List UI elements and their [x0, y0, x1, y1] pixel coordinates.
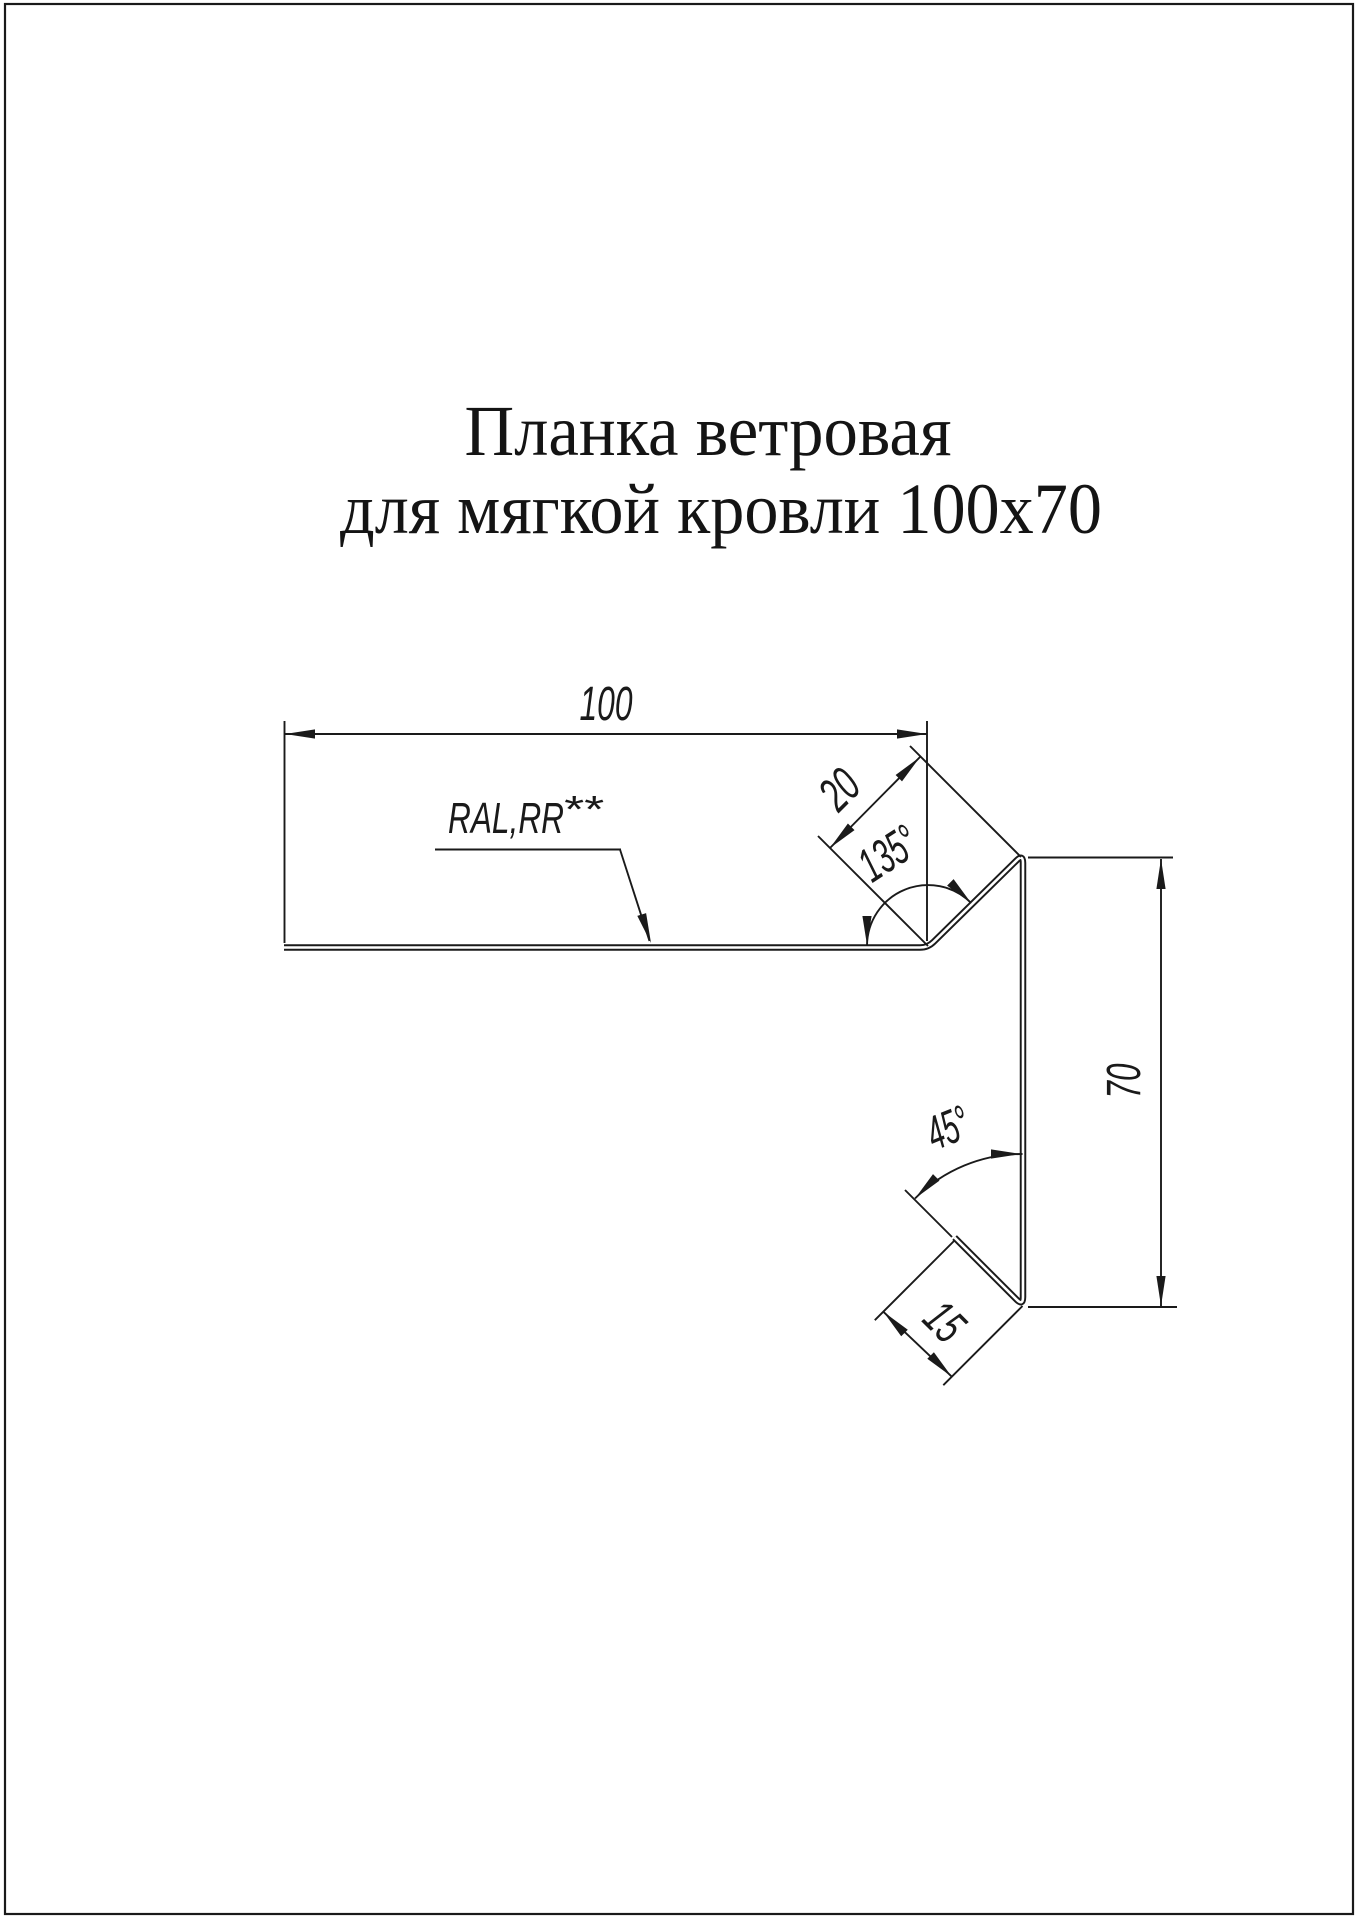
leader-arrowhead: [637, 913, 651, 943]
arrowhead-on-web: [862, 916, 871, 945]
arrowhead-lower: [830, 824, 855, 849]
drawing-sheet: Планка ветровая для мягкой кровли 100х70…: [0, 0, 1359, 1920]
dim-top-width-value: 100: [580, 678, 633, 731]
arrowhead-right: [897, 729, 927, 738]
arrowhead-lower: [927, 1352, 952, 1376]
arrowhead-top: [1156, 859, 1165, 889]
coating-footnote-mark: **: [562, 789, 604, 831]
dim-top-flange-value: 20: [808, 759, 871, 822]
profile-outline: [284, 858, 1023, 1303]
profile-metal-core: [284, 858, 1023, 1303]
dim-side-height-value: 70: [1098, 1063, 1151, 1098]
dimension-bottom-flange: 15: [875, 1241, 1023, 1385]
angle-arc: [915, 1154, 1023, 1199]
arrowhead-on-flange: [947, 879, 971, 903]
technical-drawing-canvas: Планка ветровая для мягкой кровли 100х70…: [0, 0, 1359, 1920]
dimension-side-height: 70: [1028, 858, 1177, 1308]
arrowhead-left: [285, 729, 315, 738]
drawing-title: Планка ветровая для мягкой кровли 100х70: [340, 391, 1102, 549]
page-border: [5, 4, 1353, 1914]
dim-bottom-flange-value: 15: [913, 1291, 975, 1353]
arrowhead-upper: [883, 1312, 908, 1337]
angle-top-value: 135°: [849, 815, 928, 892]
arrowhead-bottom: [1156, 1276, 1165, 1306]
arrowhead-on-flange: [915, 1174, 940, 1198]
dimension-top-width: 100: [285, 678, 928, 943]
angle-bottom-value: 45°: [919, 1096, 978, 1161]
coating-label: RAL,RR: [448, 794, 564, 843]
coating-leader: RAL,RR **: [435, 789, 651, 943]
arrowhead-on-web: [991, 1149, 1021, 1158]
profile-metal-section: [284, 858, 1023, 1303]
title-line-2: для мягкой кровли 100х70: [340, 469, 1102, 549]
angle-bottom-bend: 45°: [905, 1096, 1023, 1237]
arrowhead-upper: [896, 757, 920, 781]
flange-extension-line: [905, 1190, 952, 1237]
title-line-1: Планка ветровая: [465, 391, 952, 471]
